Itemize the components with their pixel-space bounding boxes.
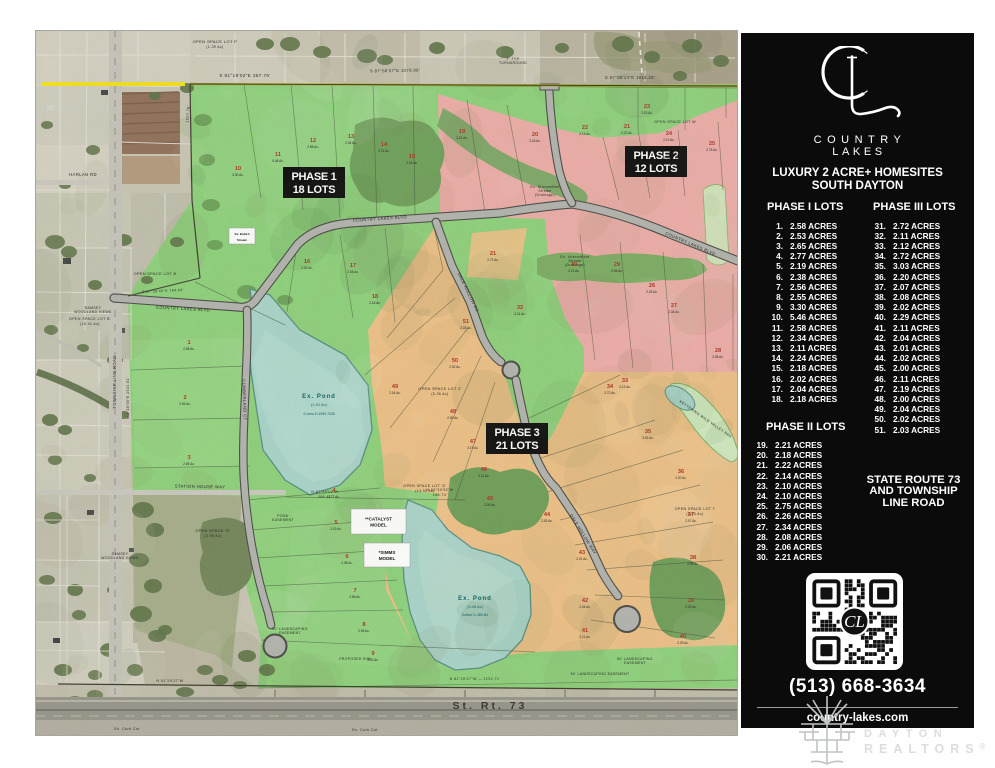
svg-text:CL: CL [844, 612, 865, 631]
